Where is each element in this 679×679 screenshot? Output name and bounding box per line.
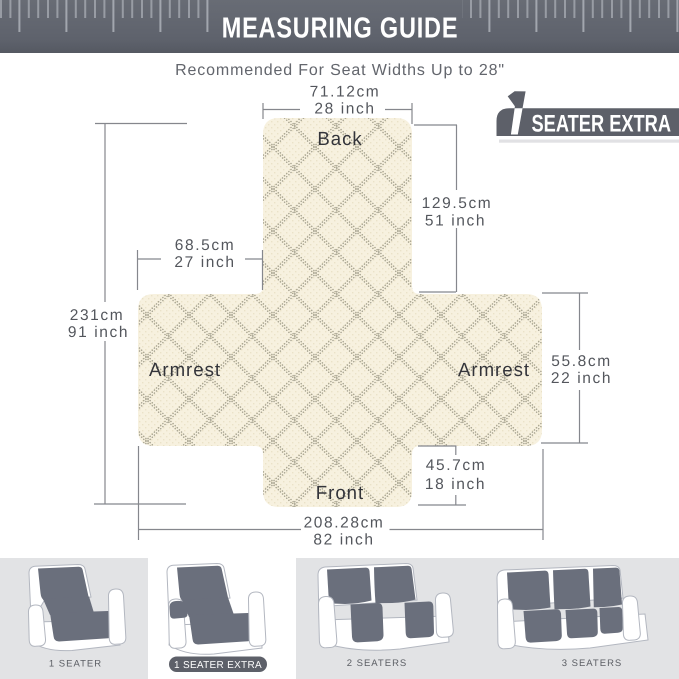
svg-text:45.7cm: 45.7cm [426, 457, 486, 474]
svg-text:231cm: 231cm [70, 307, 125, 324]
svg-text:Recommended For Seat Widths Up: Recommended For Seat Widths Up to 28" [175, 62, 505, 79]
svg-text:Armrest: Armrest [458, 360, 530, 381]
svg-text:27 inch: 27 inch [174, 254, 235, 271]
svg-text:91 inch: 91 inch [68, 324, 129, 341]
svg-text:55.8cm: 55.8cm [551, 353, 611, 370]
svg-text:Front: Front [316, 483, 364, 504]
svg-text:82 inch: 82 inch [313, 532, 374, 549]
svg-text:MEASURING GUIDE: MEASURING GUIDE [222, 13, 459, 45]
svg-text:Armrest: Armrest [149, 360, 221, 381]
svg-text:3 SEATERS: 3 SEATERS [562, 658, 623, 669]
svg-text:1 SEATER: 1 SEATER [49, 659, 102, 670]
svg-text:SEATER EXTRA: SEATER EXTRA [532, 110, 672, 137]
svg-text:208.28cm: 208.28cm [304, 515, 385, 532]
svg-text:Back: Back [317, 129, 362, 150]
svg-text:71.12cm: 71.12cm [310, 84, 381, 101]
svg-text:51 inch: 51 inch [425, 213, 486, 230]
svg-text:1 SEATER EXTRA: 1 SEATER EXTRA [174, 660, 262, 671]
svg-text:22 inch: 22 inch [551, 370, 612, 387]
svg-text:129.5cm: 129.5cm [422, 195, 493, 212]
svg-text:28 inch: 28 inch [314, 101, 375, 118]
svg-text:68.5cm: 68.5cm [175, 237, 235, 254]
svg-text:18 inch: 18 inch [425, 476, 486, 493]
svg-text:2 SEATERS: 2 SEATERS [347, 658, 408, 669]
